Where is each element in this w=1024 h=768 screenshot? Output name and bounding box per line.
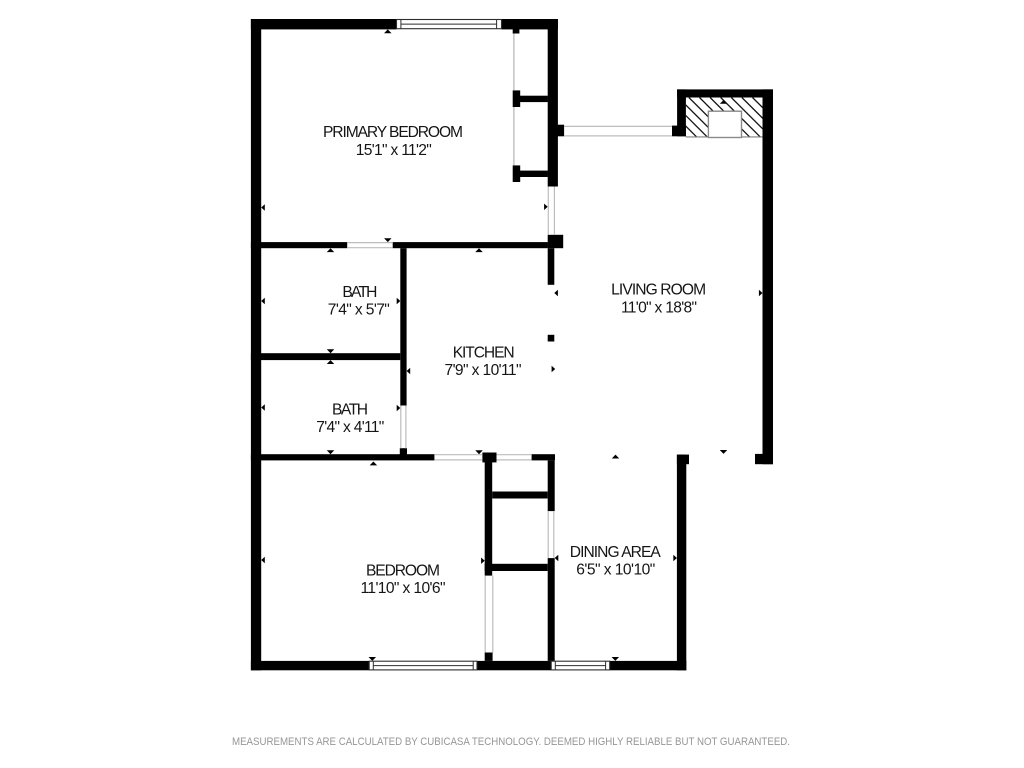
- svg-text:KITCHEN: KITCHEN: [453, 345, 515, 362]
- svg-text:7'9" x 10'11": 7'9" x 10'11": [445, 362, 522, 379]
- svg-text:11'10" x 10'6": 11'10" x 10'6": [361, 580, 446, 597]
- svg-text:7'4" x 5'7": 7'4" x 5'7": [328, 302, 390, 319]
- svg-text:DINING AREA: DINING AREA: [570, 544, 662, 561]
- svg-text:11'0" x 18'8": 11'0" x 18'8": [621, 299, 697, 316]
- svg-text:7'4" x 4'11": 7'4" x 4'11": [316, 419, 384, 436]
- svg-text:BATH: BATH: [332, 401, 368, 418]
- svg-text:MEASUREMENTS ARE CALCULATED BY: MEASUREMENTS ARE CALCULATED BY CUBICASA …: [232, 736, 790, 748]
- svg-text:LIVING ROOM: LIVING ROOM: [611, 282, 706, 299]
- svg-text:BEDROOM: BEDROOM: [366, 563, 440, 580]
- svg-text:15'1" x 11'2": 15'1" x 11'2": [356, 142, 432, 159]
- svg-text:PRIMARY BEDROOM: PRIMARY BEDROOM: [323, 124, 463, 141]
- svg-text:6'5" x 10'10": 6'5" x 10'10": [576, 561, 655, 578]
- svg-text:BATH: BATH: [342, 284, 377, 301]
